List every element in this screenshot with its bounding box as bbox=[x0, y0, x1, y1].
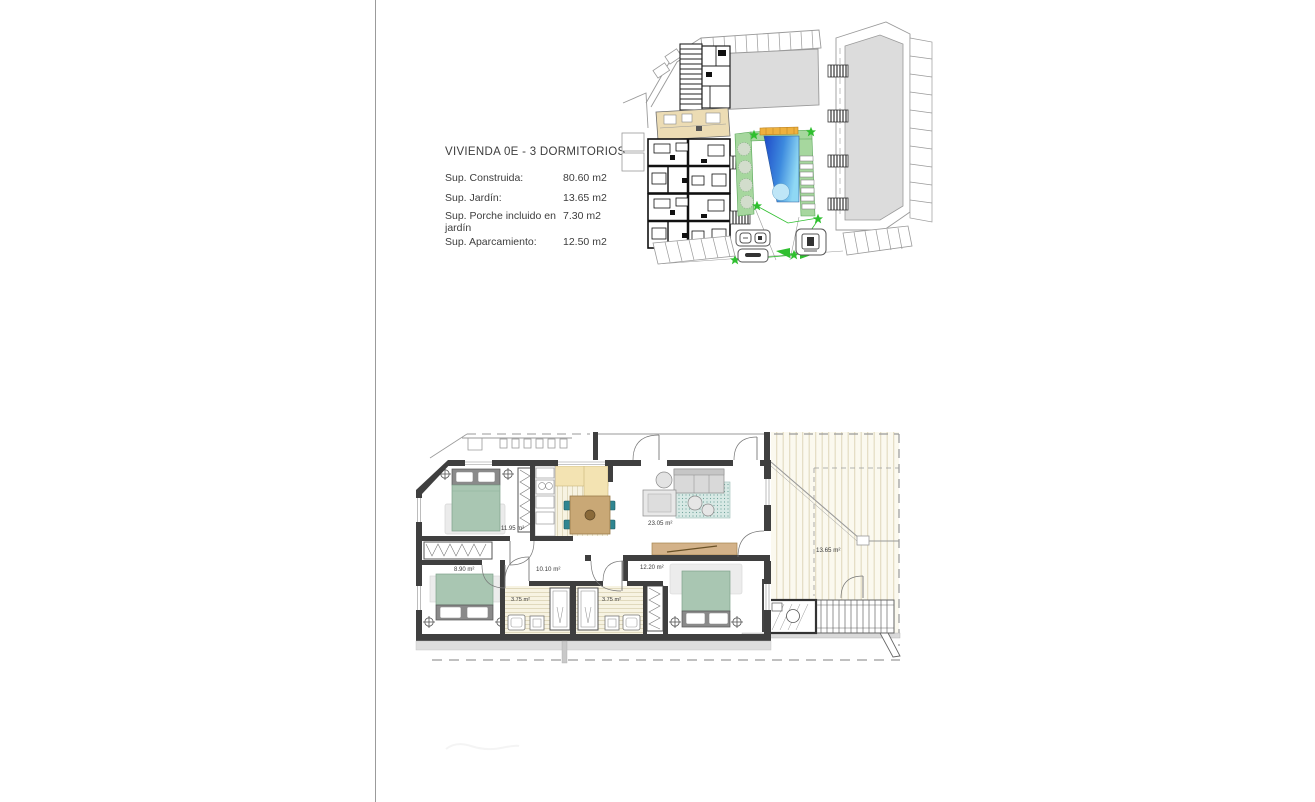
site-plan bbox=[618, 8, 936, 290]
lamp-icon bbox=[669, 616, 681, 628]
room-label-bedroom-right: 12.20 m² bbox=[640, 565, 664, 571]
pool bbox=[764, 136, 799, 202]
apartment-floor-plan: 13.65 m² bbox=[412, 424, 912, 669]
entrance-porch bbox=[593, 432, 770, 462]
bathroom-left: 3.75 m² bbox=[505, 586, 570, 634]
lamp-icon bbox=[502, 468, 514, 480]
area-value: 7.30 m2 bbox=[563, 210, 601, 234]
neighbor-pergola bbox=[430, 434, 590, 458]
bedroom-left: 8.90 m² bbox=[423, 542, 507, 628]
bedroom-main: 11.95 m² bbox=[439, 468, 532, 534]
room-label-terrace: 13.65 m² bbox=[816, 547, 840, 554]
kitchen bbox=[535, 466, 615, 536]
room-label-hallway: 10.10 m² bbox=[536, 566, 560, 573]
page-edge-line bbox=[375, 0, 376, 802]
plan-sheet: VIVIENDA 0E - 3 DORMITORIOS Sup. Constru… bbox=[0, 0, 1315, 802]
faint-signature-mark bbox=[443, 738, 533, 754]
pool-edge-deck bbox=[760, 127, 798, 135]
lamp-icon bbox=[731, 616, 743, 628]
dining-table bbox=[564, 496, 615, 534]
room-label-bedroom-left: 8.90 m² bbox=[454, 567, 474, 573]
area-label: Sup. Porche incluido en jardín bbox=[445, 210, 563, 234]
sun-loungers bbox=[800, 156, 815, 209]
bathroom-right: 3.75 m² bbox=[576, 586, 643, 634]
unit-block-mid bbox=[648, 139, 750, 193]
room-label-bath-left: 3.75 m² bbox=[511, 597, 530, 603]
pool-equipment-icons bbox=[736, 229, 826, 262]
bedroom-right: 12.20 m² bbox=[640, 564, 743, 631]
highlighted-unit bbox=[656, 108, 730, 140]
parking-row-east bbox=[910, 38, 932, 222]
living-room: 23.05 m² bbox=[643, 469, 737, 555]
unit-block-top bbox=[680, 44, 730, 110]
room-label-bath-right: 3.75 m² bbox=[602, 597, 621, 603]
site-boundary bbox=[416, 641, 900, 663]
area-value: 13.65 m2 bbox=[563, 192, 607, 204]
area-label: Sup. Aparcamiento: bbox=[445, 236, 563, 248]
room-label-living: 23.05 m² bbox=[648, 520, 672, 527]
room-label-bedroom-main: 11.95 m² bbox=[501, 526, 524, 532]
area-value: 80.60 m2 bbox=[563, 172, 607, 184]
area-value: 12.50 m2 bbox=[563, 236, 607, 248]
area-label: Sup. Jardín: bbox=[445, 192, 563, 204]
lamp-icon bbox=[423, 616, 435, 628]
area-label: Sup. Construida: bbox=[445, 172, 563, 184]
